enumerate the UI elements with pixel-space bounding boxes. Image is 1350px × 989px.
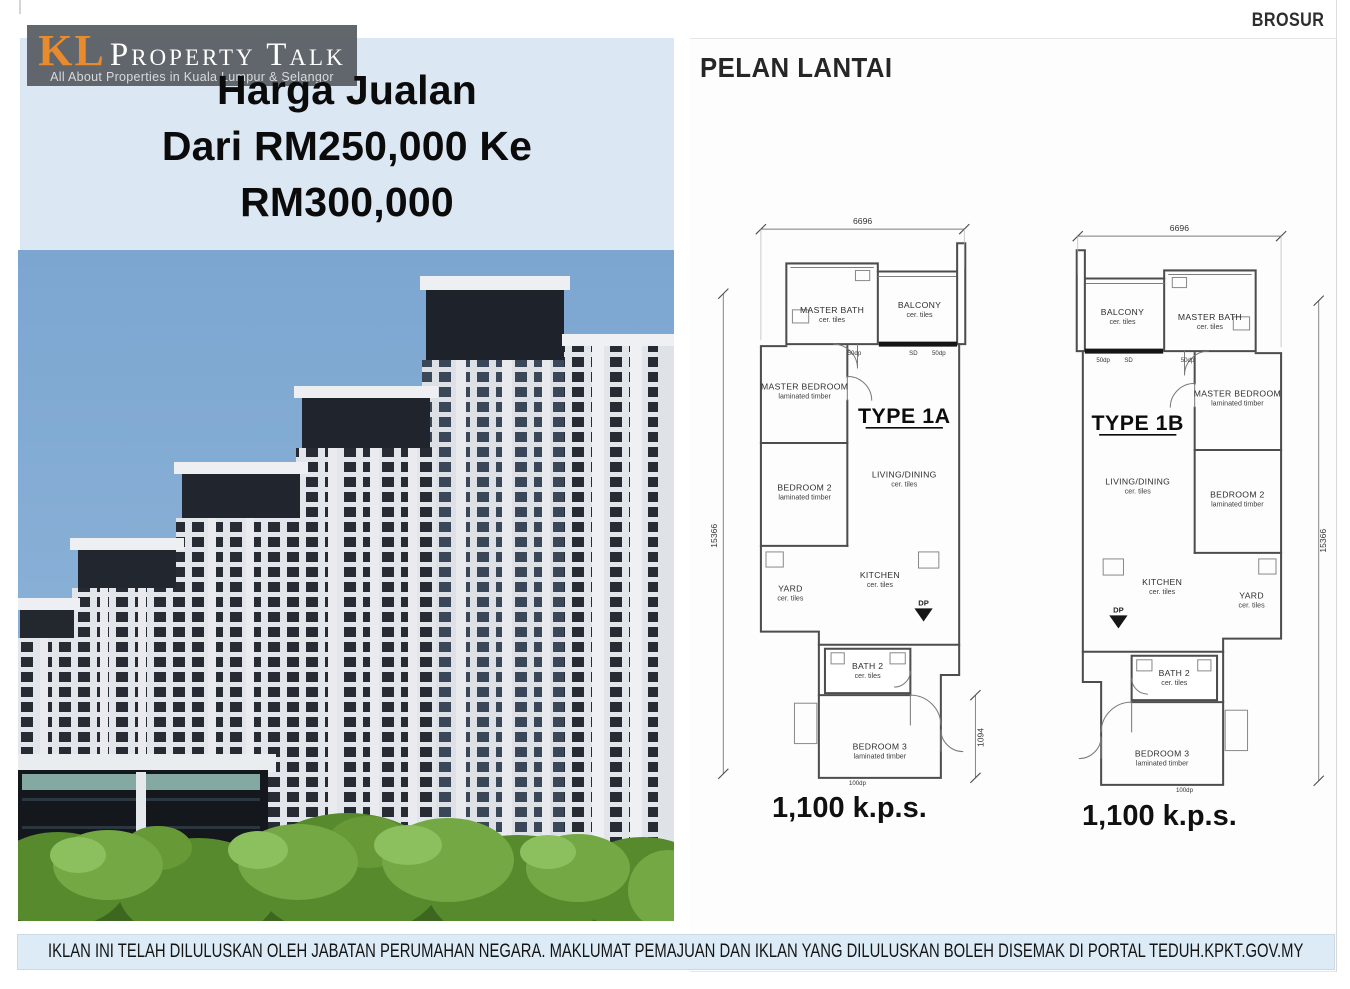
svg-text:DP: DP [918, 598, 929, 607]
svg-text:LIVING/DINING: LIVING/DINING [1105, 476, 1170, 486]
price-line-3: RM300,000 [20, 174, 674, 230]
brochure-page: KL Property Talk All About Properties in… [0, 0, 1350, 989]
svg-text:laminated timber: laminated timber [1136, 760, 1189, 768]
svg-text:50dp: 50dp [848, 351, 862, 357]
area-label-type-1b: 1,100 k.p.s. [1082, 800, 1237, 833]
floor-plan-type-1a: 6696 15366 1094 MASTER BATH cer. tiles B… [705, 213, 1010, 793]
svg-text:BEDROOM 2: BEDROOM 2 [1210, 489, 1265, 499]
svg-text:YARD: YARD [778, 583, 803, 593]
svg-text:KITCHEN: KITCHEN [860, 570, 900, 580]
dp-marker [1109, 615, 1127, 628]
plan-1b-labels: MASTER BATH cer. tiles BALCONY cer. tile… [1091, 307, 1280, 794]
svg-text:100dp: 100dp [1176, 788, 1194, 794]
svg-text:BEDROOM 3: BEDROOM 3 [853, 742, 908, 752]
dp-marker [914, 608, 932, 621]
building-rendering [18, 250, 674, 921]
svg-text:KITCHEN: KITCHEN [1142, 577, 1182, 587]
svg-text:BALCONY: BALCONY [1101, 307, 1144, 317]
svg-text:laminated timber: laminated timber [854, 753, 907, 761]
svg-text:laminated timber: laminated timber [778, 393, 831, 401]
disclaimer-text: IKLAN INI TELAH DILULUSKAN OLEH JABATAN … [48, 941, 1303, 963]
svg-text:YARD: YARD [1239, 590, 1264, 600]
svg-text:SD: SD [1124, 358, 1133, 364]
dim-width: 6696 [853, 216, 872, 226]
svg-text:LIVING/DINING: LIVING/DINING [872, 469, 937, 479]
svg-text:DP: DP [1113, 605, 1124, 614]
area-label-type-1a: 1,100 k.p.s. [772, 792, 927, 825]
price-line-1: Harga Jualan [20, 62, 674, 118]
approval-disclaimer-bar: IKLAN INI TELAH DILULUSKAN OLEH JABATAN … [17, 934, 1335, 970]
svg-text:cer. tiles: cer. tiles [891, 480, 918, 488]
dim-height: 15366 [1318, 529, 1328, 553]
svg-text:cer. tiles: cer. tiles [1239, 601, 1266, 609]
svg-text:cer. tiles: cer. tiles [819, 316, 846, 324]
svg-text:MASTER BEDROOM: MASTER BEDROOM [761, 382, 848, 392]
svg-text:SD: SD [909, 351, 918, 357]
svg-text:MASTER BATH: MASTER BATH [800, 305, 864, 315]
svg-text:cer. tiles: cer. tiles [1125, 487, 1152, 495]
dim-entry: 1094 [976, 728, 986, 747]
svg-text:50dp: 50dp [1181, 358, 1195, 364]
svg-text:50dp: 50dp [1096, 358, 1110, 364]
svg-text:cer. tiles: cer. tiles [1109, 318, 1136, 326]
svg-text:cer. tiles: cer. tiles [1161, 679, 1188, 687]
svg-text:50dp: 50dp [932, 351, 946, 357]
svg-text:BEDROOM 2: BEDROOM 2 [777, 482, 832, 492]
plan-1a-walls [761, 243, 965, 778]
svg-text:laminated timber: laminated timber [778, 493, 831, 501]
svg-text:cer. tiles: cer. tiles [906, 311, 933, 319]
floor-plan-type-1b: 6696 15366 MASTER BATH cer. tiles BALCON… [1032, 220, 1337, 800]
svg-text:MASTER BATH: MASTER BATH [1178, 312, 1242, 322]
type-1a-label: TYPE 1A [858, 404, 950, 428]
page-edge-line [1336, 0, 1337, 38]
tower-right [562, 334, 674, 891]
svg-text:BATH 2: BATH 2 [1159, 668, 1190, 678]
brosur-label: BROSUR [1239, 10, 1324, 32]
page-edge-mark [19, 0, 21, 14]
svg-text:laminated timber: laminated timber [1211, 500, 1264, 508]
svg-text:BALCONY: BALCONY [898, 300, 941, 310]
svg-text:cer. tiles: cer. tiles [777, 594, 804, 602]
type-1b-label: TYPE 1B [1091, 411, 1183, 435]
svg-text:cer. tiles: cer. tiles [855, 672, 882, 680]
price-line-2: Dari RM250,000 Ke [20, 118, 674, 174]
svg-text:100dp: 100dp [849, 781, 867, 787]
svg-text:BATH 2: BATH 2 [852, 661, 883, 671]
plan-1b-walls [1077, 250, 1281, 785]
section-title-pelan-lantai: PELAN LANTAI [700, 52, 909, 84]
dim-height: 15366 [709, 524, 719, 548]
price-headline: Harga Jualan Dari RM250,000 Ke RM300,000 [20, 62, 674, 230]
svg-text:BEDROOM 3: BEDROOM 3 [1135, 749, 1190, 759]
svg-text:cer. tiles: cer. tiles [1197, 323, 1224, 331]
dim-width: 6696 [1170, 223, 1189, 233]
tower-tallest [420, 276, 570, 891]
plan-1a-labels: MASTER BATH cer. tiles BALCONY cer. tile… [761, 300, 950, 787]
svg-text:MASTER BEDROOM: MASTER BEDROOM [1194, 389, 1281, 399]
svg-text:cer. tiles: cer. tiles [867, 581, 894, 589]
svg-text:cer. tiles: cer. tiles [1149, 588, 1176, 596]
svg-text:laminated timber: laminated timber [1211, 400, 1264, 408]
